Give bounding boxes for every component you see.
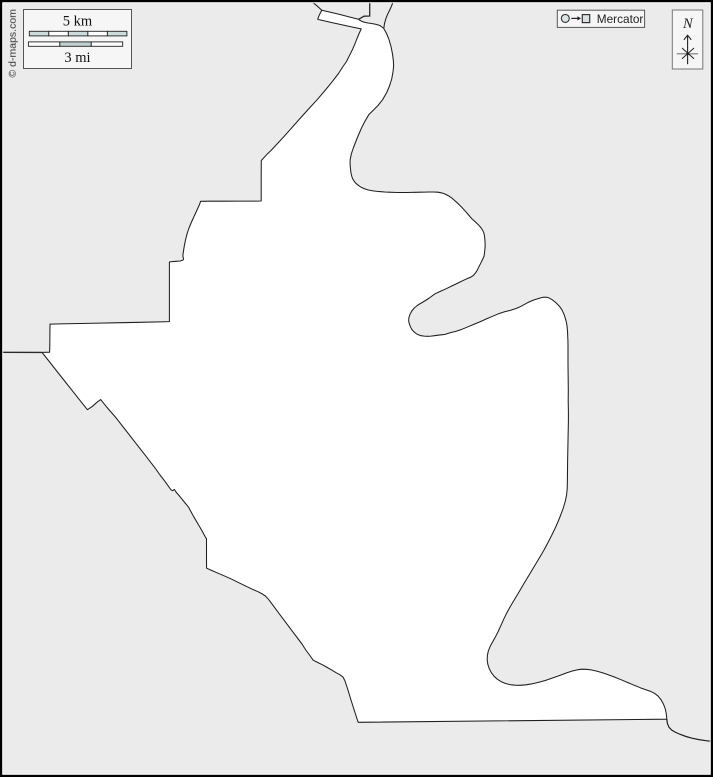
- svg-text:N: N: [682, 16, 694, 32]
- svg-text:Mercator: Mercator: [597, 12, 644, 26]
- svg-text:3 mi: 3 mi: [64, 50, 90, 66]
- svg-text:© d-maps.com: © d-maps.com: [7, 9, 19, 78]
- svg-text:5 km: 5 km: [63, 14, 93, 30]
